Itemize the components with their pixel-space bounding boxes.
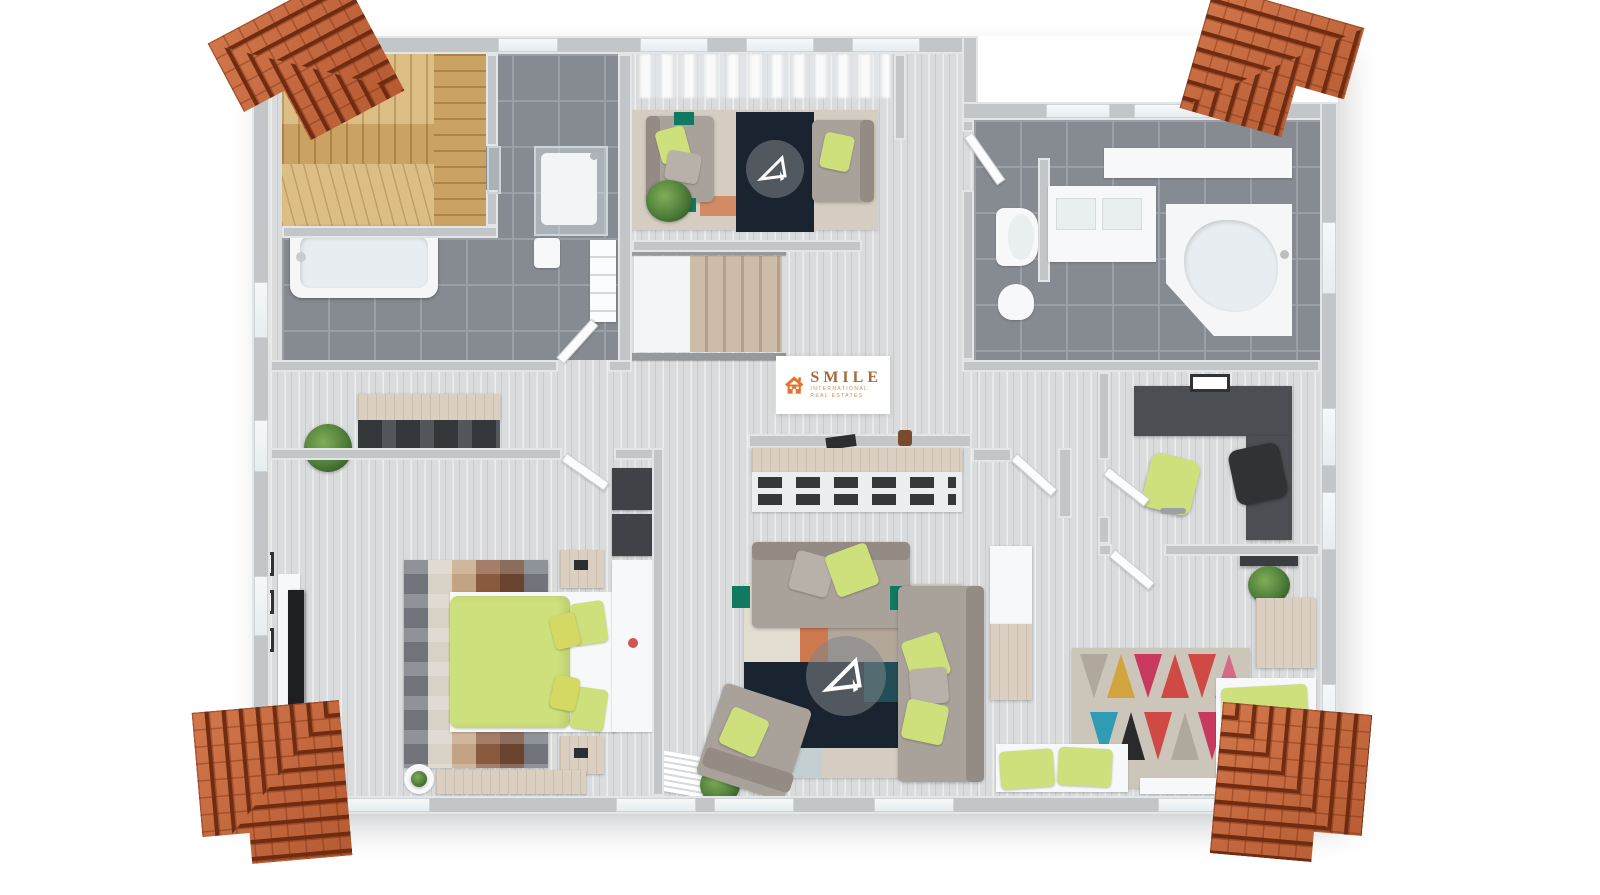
sauna-bench-right <box>434 54 486 226</box>
window-top-5 <box>1046 104 1110 118</box>
bedroom-wardrobe-dark-2 <box>612 514 652 556</box>
window-bottom-2 <box>616 798 696 812</box>
lounge-curtains <box>640 54 890 98</box>
vanity-sink-left <box>1056 198 1096 230</box>
vanity-sink-right <box>1102 198 1142 230</box>
office-wall-frame <box>1190 374 1230 392</box>
kids-cabinet-lower <box>990 624 1032 700</box>
sail-boat-watermark-icon <box>819 649 873 703</box>
nightstand-top-item <box>574 560 588 570</box>
roof-corner-bottom-left <box>191 700 352 868</box>
office-chair-base <box>1160 508 1186 514</box>
bedroom-foot-bench <box>436 770 586 794</box>
corner-bathtub-faucet <box>1280 250 1289 259</box>
window-left-1 <box>254 282 268 338</box>
wall-hall-right-a <box>972 448 1012 462</box>
office-chair-black <box>1227 441 1290 507</box>
wall-bedroom-top-a <box>270 448 562 460</box>
bedroom-tv <box>288 590 304 712</box>
agency-logo-text: SMILE INTERNATIONAL REAL ESTATES <box>810 370 882 400</box>
wall-bedroom-right <box>652 448 664 796</box>
lounge-watermark <box>746 140 804 198</box>
shower-head <box>590 152 598 160</box>
window-right-2 <box>1322 408 1336 466</box>
sail-boat-watermark-icon <box>755 149 795 189</box>
wall-sauna-upper <box>486 54 498 146</box>
wall-bath-left-bottom-b <box>608 360 632 372</box>
nightstand-bottom-item <box>574 748 588 758</box>
wall-bathroom-right-bottom <box>962 360 1320 372</box>
wall-lounge-bottom <box>632 240 862 252</box>
kids-bench-cushion-2 <box>1057 747 1113 788</box>
wall-bath-left-right <box>618 54 632 372</box>
window-top-2 <box>640 38 708 52</box>
stair-railing-bottom <box>630 353 786 360</box>
bathroom-right-counter <box>1104 148 1292 178</box>
living-watermark <box>806 636 886 716</box>
window-bottom-1 <box>344 798 430 812</box>
sauna-glass-door <box>487 146 501 194</box>
kids-bench-cushion-1 <box>999 748 1056 790</box>
agency-tagline-line1: INTERNATIONAL <box>810 386 882 393</box>
window-left-3 <box>254 576 268 636</box>
floor-plan-canvas: SMILE INTERNATIONAL REAL ESTATES <box>0 0 1600 895</box>
bedroom-stool-plant <box>411 771 427 787</box>
wall-bathroom-right-left-a <box>962 120 974 132</box>
wall-office-left-a <box>1098 372 1110 460</box>
bedroom-wardrobe-dark-1 <box>612 468 652 510</box>
living-sofa-right-back <box>966 586 984 782</box>
wall-hall-right-stub <box>1058 448 1072 518</box>
window-right-1 <box>1322 222 1336 294</box>
half-wall-jar <box>898 430 912 446</box>
house-icon <box>784 367 804 403</box>
bidet <box>998 284 1034 320</box>
office-desk-top <box>1134 386 1292 436</box>
bookshelf-row-1 <box>758 477 956 488</box>
wall-office-left-b <box>1098 516 1110 544</box>
living-sofa-right-pillow-2 <box>900 698 949 746</box>
bathtub-basin <box>300 236 428 288</box>
agency-tagline-line2: REAL ESTATES <box>810 393 882 400</box>
bathroom-left-sink <box>534 238 560 268</box>
window-bottom-3 <box>714 798 794 812</box>
window-top-3 <box>746 38 814 52</box>
toilet-seat <box>1008 214 1034 260</box>
living-side-table-left <box>732 586 750 608</box>
exterior-wall-face-bottom <box>252 814 1338 828</box>
bookshelf-row-2 <box>758 494 956 505</box>
stairwell-void <box>634 256 690 352</box>
window-top-1 <box>498 38 558 52</box>
wall-bathroom-right-left-b <box>962 190 974 360</box>
kids-cabinet <box>990 546 1032 624</box>
wall-sauna-lower <box>486 190 498 226</box>
bookshelf-sideboard-top <box>752 448 962 472</box>
bathroom-left-cabinet <box>590 240 616 322</box>
kids-white-table <box>1140 778 1222 794</box>
shower-tray <box>541 153 597 225</box>
wall-sauna-bottom <box>282 226 498 238</box>
lounge-plant <box>646 180 692 222</box>
wall-office-bottom-b <box>1164 544 1320 556</box>
agency-name: SMILE <box>810 370 882 386</box>
lounge-side-table-top <box>674 112 694 125</box>
staircase-steps <box>690 256 782 352</box>
bathtub-faucet <box>296 252 306 262</box>
window-left-2 <box>254 420 268 472</box>
lounge-armchair-right-back <box>860 120 874 202</box>
agency-logo-card: SMILE INTERNATIONAL REAL ESTATES <box>776 356 890 414</box>
window-bottom-4 <box>874 798 954 812</box>
bedroom-wardrobe-decor <box>628 638 638 648</box>
window-right-3 <box>1322 492 1336 550</box>
roof-corner-bottom-right <box>1210 702 1373 866</box>
kids-wardrobe <box>1256 598 1316 668</box>
window-top-4 <box>852 38 920 52</box>
living-half-wall <box>748 434 972 448</box>
hall-sideboard-top <box>358 394 500 420</box>
wall-lounge-right-stub <box>894 54 906 140</box>
wall-bath-left-bottom-a <box>270 360 558 372</box>
